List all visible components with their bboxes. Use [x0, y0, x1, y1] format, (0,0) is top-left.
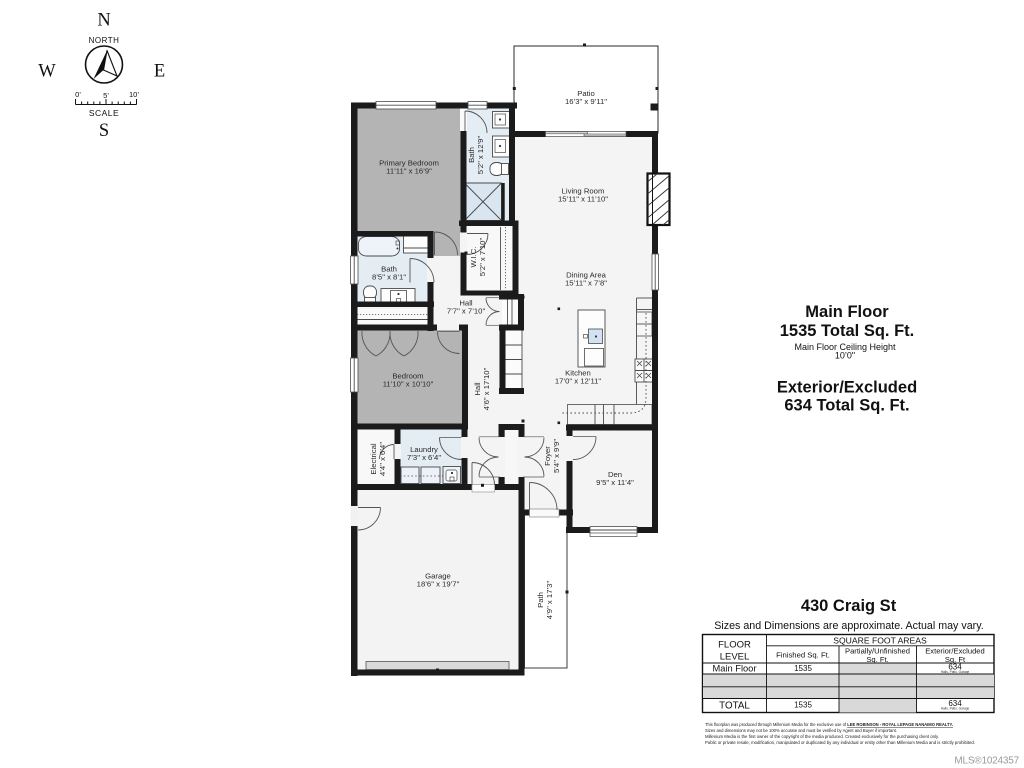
- svg-text:Sq. Ft.: Sq. Ft.: [866, 655, 888, 664]
- svg-text:Hall: Hall: [473, 382, 482, 396]
- svg-text:Finished Sq. Ft.: Finished Sq. Ft.: [776, 651, 830, 660]
- svg-text:Millenium Media is the first o: Millenium Media is the first owner of th…: [705, 734, 939, 740]
- svg-text:W: W: [38, 62, 56, 82]
- svg-text:5’2" x 12’9": 5’2" x 12’9": [476, 136, 485, 175]
- svg-text:16’3" x 9’11": 16’3" x 9’11": [565, 97, 607, 106]
- svg-text:0’: 0’: [75, 90, 81, 99]
- svg-text:4’6" x 17’10": 4’6" x 17’10": [482, 367, 491, 410]
- svg-text:Sizes and dimensions may not b: Sizes and dimensions may not be 100% acc…: [705, 728, 897, 734]
- svg-text:Halls, Patio, Garage: Halls, Patio, Garage: [941, 707, 970, 711]
- svg-text:Foyer: Foyer: [543, 446, 552, 466]
- svg-text:18’6" x 19’7": 18’6" x 19’7": [417, 580, 460, 589]
- svg-text:8’5" x 8’1": 8’5" x 8’1": [372, 273, 406, 282]
- svg-text:Main Floor: Main Floor: [805, 303, 889, 321]
- svg-text:430 Craig St: 430 Craig St: [801, 597, 897, 615]
- svg-text:634 Total Sq. Ft.: 634 Total Sq. Ft.: [784, 397, 909, 415]
- svg-text:9’5" x 11’4": 9’5" x 11’4": [596, 478, 634, 487]
- svg-text:Bath: Bath: [467, 147, 476, 163]
- svg-text:4’4" x 6’4": 4’4" x 6’4": [378, 442, 387, 476]
- svg-text:15’11" x 7’8": 15’11" x 7’8": [565, 279, 607, 288]
- svg-text:15’11" x 11’10": 15’11" x 11’10": [558, 195, 608, 204]
- svg-text:Halls, Patio, Garage: Halls, Patio, Garage: [941, 670, 970, 674]
- svg-text:5’2" x 7’10": 5’2" x 7’10": [478, 238, 487, 277]
- svg-text:SQUARE FOOT AREAS: SQUARE FOOT AREAS: [833, 636, 927, 646]
- svg-text:5’: 5’: [103, 91, 109, 100]
- svg-text:1535: 1535: [794, 701, 812, 710]
- svg-text:N: N: [97, 11, 110, 31]
- svg-text:17’0" x 12’11": 17’0" x 12’11": [555, 377, 602, 386]
- svg-text:W.I.C.: W.I.C.: [469, 247, 478, 268]
- svg-text:Electrical: Electrical: [369, 443, 378, 474]
- svg-text:NORTH: NORTH: [89, 36, 120, 45]
- svg-text:FLOOR: FLOOR: [718, 640, 751, 651]
- svg-text:7’7" x 7’10": 7’7" x 7’10": [447, 307, 486, 316]
- svg-text:1535: 1535: [794, 664, 812, 673]
- svg-text:This floorplan was produced th: This floorplan was produced through Mill…: [705, 722, 954, 728]
- svg-text:5’4" x 9’9": 5’4" x 9’9": [552, 439, 561, 473]
- svg-text:TOTAL: TOTAL: [719, 701, 750, 712]
- svg-text:Path: Path: [536, 592, 545, 608]
- svg-text:SCALE: SCALE: [89, 108, 119, 118]
- svg-text:11’10" x 10’10": 11’10" x 10’10": [383, 380, 434, 389]
- svg-text:4’9" x 17’3": 4’9" x 17’3": [545, 581, 554, 620]
- svg-text:10’0": 10’0": [835, 351, 855, 361]
- svg-text:Exterior/Excluded: Exterior/Excluded: [777, 379, 917, 397]
- svg-text:Public or private resale, modi: Public or private resale, modification, …: [705, 740, 975, 746]
- svg-text:LEVEL: LEVEL: [720, 652, 750, 663]
- svg-text:E: E: [154, 62, 165, 82]
- svg-text:Main Floor: Main Floor: [713, 664, 757, 674]
- svg-text:MLS®1024357: MLS®1024357: [954, 756, 1019, 767]
- svg-text:1535 Total Sq. Ft.: 1535 Total Sq. Ft.: [780, 322, 914, 340]
- svg-text:S: S: [99, 121, 109, 141]
- svg-text:7’3" x 6’4": 7’3" x 6’4": [407, 453, 441, 462]
- svg-text:11’11" x 16’9": 11’11" x 16’9": [386, 167, 432, 176]
- svg-text:10’: 10’: [129, 90, 139, 99]
- svg-text:Sizes and Dimensions are appro: Sizes and Dimensions are approximate. Ac…: [714, 620, 983, 632]
